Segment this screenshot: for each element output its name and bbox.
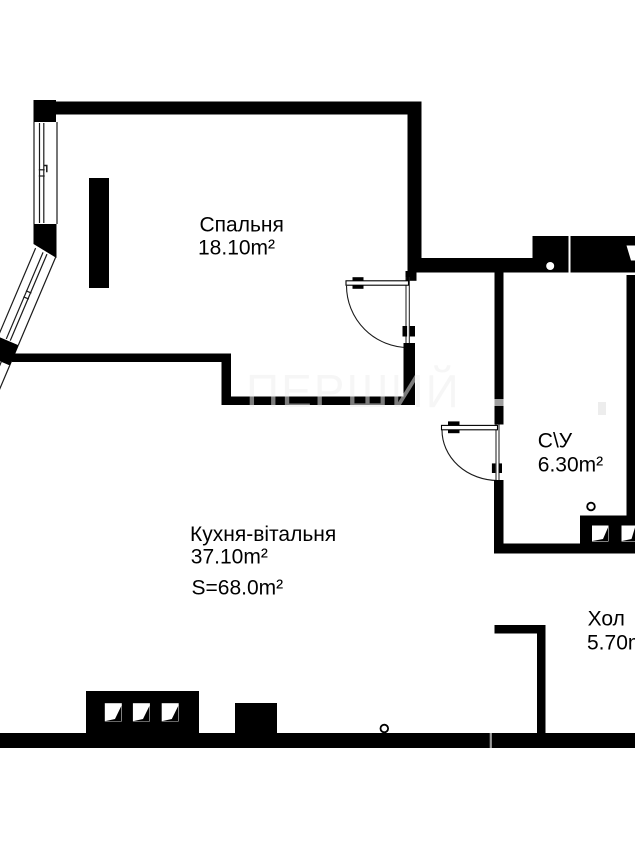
svg-text:Спальня: Спальня	[200, 213, 284, 236]
svg-text:S=68.0m²: S=68.0m²	[192, 576, 284, 599]
svg-text:6.30m²: 6.30m²	[538, 454, 603, 477]
svg-text:C\У: C\У	[538, 430, 573, 453]
svg-text:ПЕРШИЙ: ПЕРШИЙ	[246, 365, 461, 417]
svg-text:37.10m²: 37.10m²	[191, 546, 268, 569]
svg-text:18.10m²: 18.10m²	[198, 236, 275, 259]
svg-text:5.70m²: 5.70m²	[587, 632, 635, 655]
svg-text:Кухня-вітальня: Кухня-вітальня	[190, 523, 336, 546]
svg-text:Хол: Хол	[588, 608, 625, 631]
